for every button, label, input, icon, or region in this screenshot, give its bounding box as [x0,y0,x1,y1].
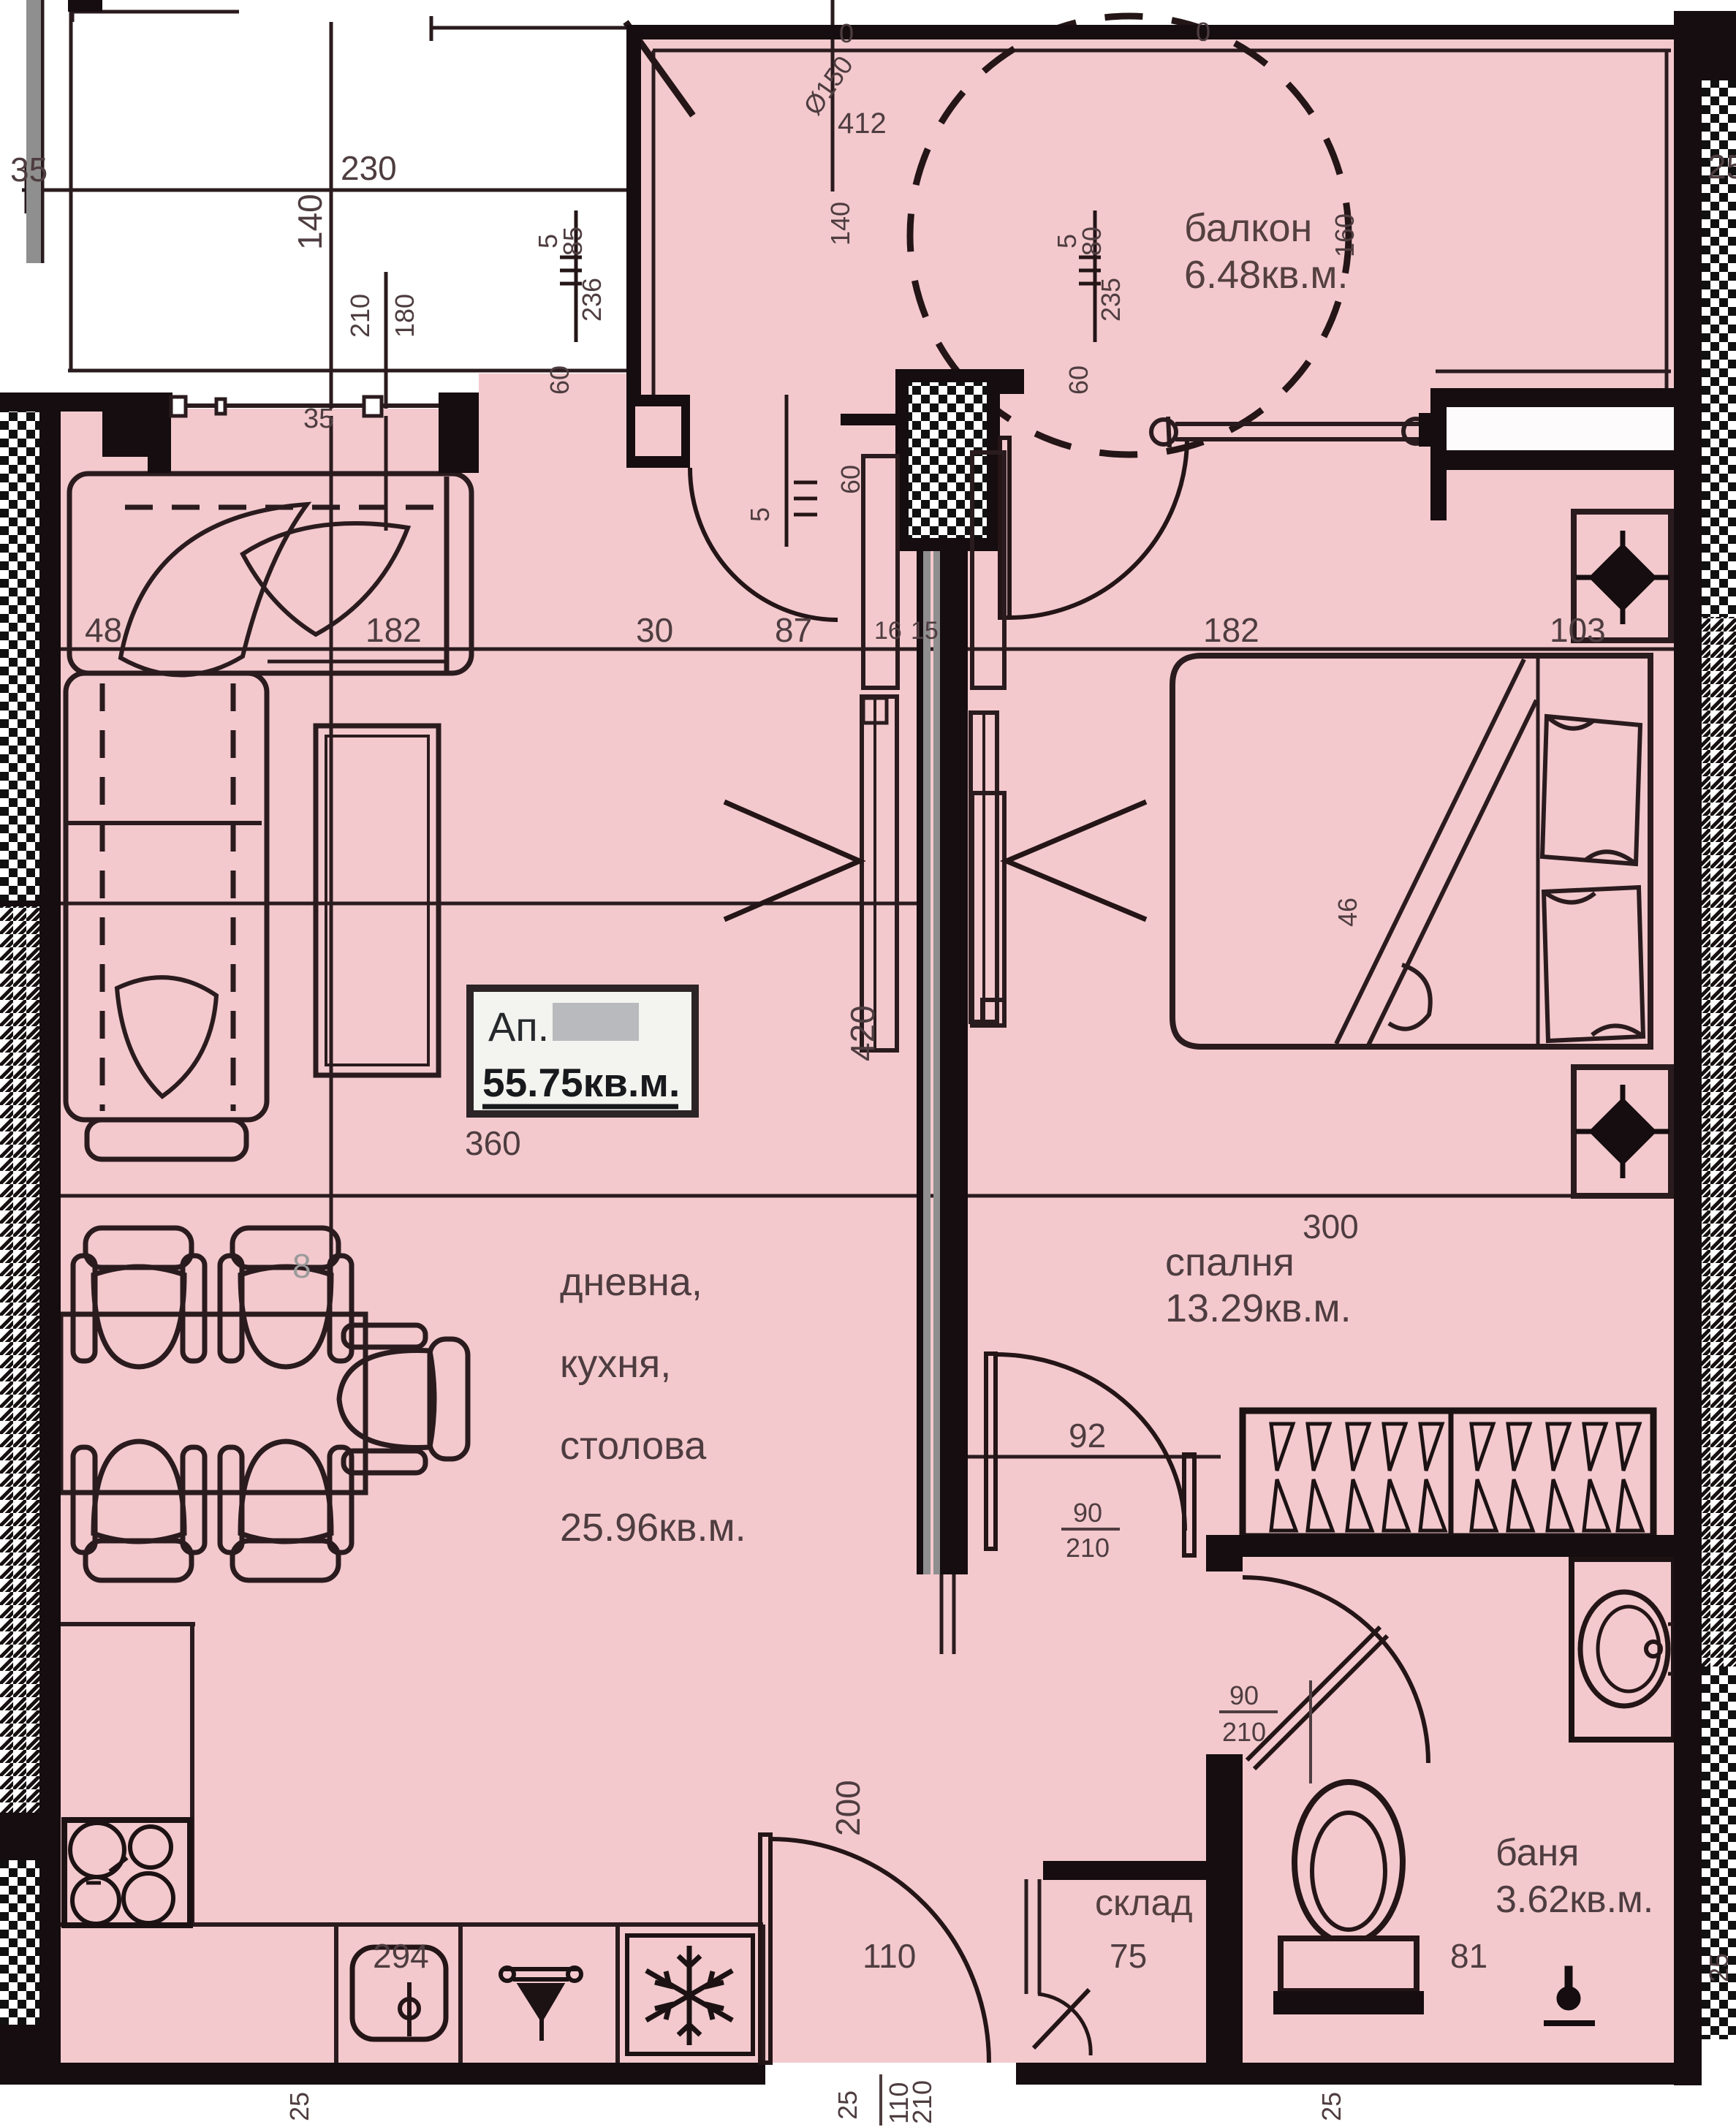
svg-text:230: 230 [341,149,397,187]
svg-text:360: 360 [465,1124,521,1162]
svg-text:5: 5 [533,234,563,249]
svg-text:210: 210 [907,2080,937,2124]
svg-text:5: 5 [745,507,775,522]
svg-text:5: 5 [1052,234,1082,249]
svg-text:87: 87 [775,611,812,649]
svg-text:16: 16 [874,617,902,645]
svg-text:180: 180 [390,294,420,338]
svg-text:25: 25 [1704,1953,1734,1982]
svg-text:30: 30 [636,611,673,649]
svg-text:182: 182 [1203,611,1259,649]
svg-text:Ап.: Ап. [488,1004,549,1050]
svg-text:балкон: балкон [1184,206,1312,250]
svg-text:25: 25 [284,2092,314,2121]
svg-text:8: 8 [292,1247,311,1285]
svg-text:столова: столова [560,1424,707,1468]
svg-text:92: 92 [1069,1417,1106,1455]
svg-text:13.29кв.м.: 13.29кв.м. [1165,1286,1352,1330]
svg-text:35: 35 [303,403,334,434]
svg-text:160: 160 [1330,213,1360,257]
svg-text:3.62кв.м.: 3.62кв.м. [1496,1878,1653,1921]
svg-text:48: 48 [85,611,122,649]
svg-text:6.48кв.м.: 6.48кв.м. [1184,253,1349,297]
svg-text:420: 420 [844,1005,882,1061]
svg-text:55.75кв.м.: 55.75кв.м. [482,1060,680,1105]
svg-text:25: 25 [833,2090,863,2120]
svg-text:81: 81 [1450,1937,1487,1975]
svg-text:90: 90 [1229,1680,1259,1710]
svg-text:75: 75 [1110,1937,1147,1975]
svg-text:90: 90 [1073,1498,1102,1528]
svg-text:кухня,: кухня, [560,1342,671,1386]
svg-text:46: 46 [1333,898,1362,927]
svg-text:60: 60 [835,465,865,494]
svg-text:110: 110 [863,1937,916,1975]
svg-text:0: 0 [839,18,854,48]
svg-text:200: 200 [829,1780,867,1836]
svg-text:25.96кв.м.: 25.96кв.м. [560,1506,746,1550]
svg-text:15: 15 [911,617,939,645]
svg-text:300: 300 [1303,1207,1359,1246]
svg-text:0: 0 [1196,17,1210,47]
svg-text:25: 25 [1707,148,1736,186]
svg-text:склад: склад [1095,1882,1193,1923]
svg-text:140: 140 [291,194,329,250]
svg-text:спалня: спалня [1165,1240,1295,1284]
svg-text:35: 35 [10,151,48,189]
svg-text:дневна,: дневна, [560,1260,702,1304]
svg-text:103: 103 [1550,611,1606,649]
svg-text:баня: баня [1496,1832,1579,1874]
svg-text:210: 210 [1066,1533,1110,1563]
svg-text:236: 236 [577,278,607,322]
svg-text:182: 182 [365,611,422,649]
svg-text:210: 210 [1222,1717,1266,1747]
svg-text:294: 294 [373,1937,429,1975]
svg-text:235: 235 [1096,278,1126,322]
svg-text:60: 60 [545,365,575,395]
svg-text:60: 60 [1064,365,1093,395]
svg-text:140: 140 [825,202,855,246]
svg-text:412: 412 [838,107,887,140]
svg-text:210: 210 [345,294,375,338]
svg-text:25: 25 [1316,2092,1346,2121]
